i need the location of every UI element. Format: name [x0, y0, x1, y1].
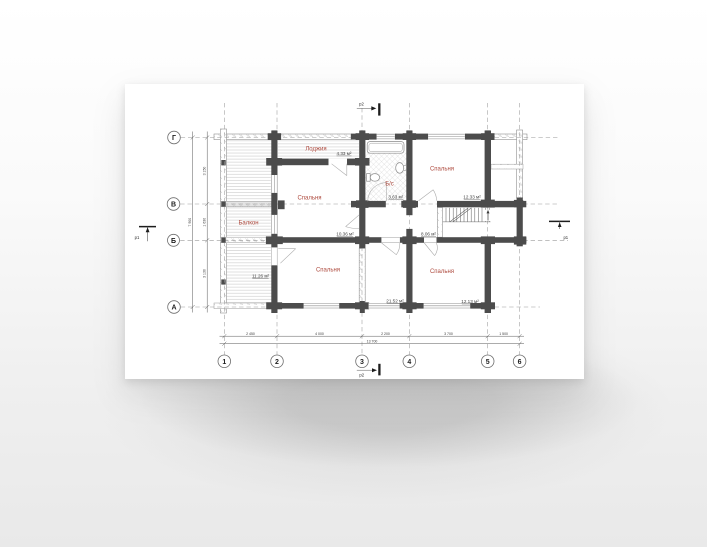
svg-text:Б/с: Б/с: [385, 182, 394, 188]
svg-text:12.33 м²: 12.33 м²: [463, 195, 481, 200]
svg-text:4 000: 4 000: [315, 332, 324, 336]
svg-text:Г: Г: [172, 135, 176, 142]
svg-text:1 630: 1 630: [203, 218, 207, 227]
svg-text:р2: р2: [359, 101, 364, 106]
svg-text:12.13 м²: 12.13 м²: [461, 299, 479, 304]
svg-text:Спальня: Спальня: [297, 196, 321, 202]
svg-text:Спальня: Спальня: [316, 268, 340, 274]
svg-text:6: 6: [518, 359, 522, 366]
svg-text:2: 2: [275, 359, 279, 366]
svg-text:2 450: 2 450: [246, 332, 255, 336]
svg-text:11.26 м²: 11.26 м²: [252, 274, 270, 279]
svg-text:Спальня: Спальня: [430, 269, 454, 275]
svg-text:13 700: 13 700: [367, 340, 378, 344]
svg-text:10.36 м²: 10.36 м²: [336, 232, 354, 237]
svg-text:4: 4: [407, 359, 411, 366]
svg-text:Лоджия: Лоджия: [305, 147, 326, 153]
svg-text:1: 1: [222, 359, 226, 366]
svg-text:р1: р1: [563, 235, 568, 240]
svg-text:21.52 м²: 21.52 м²: [386, 299, 404, 304]
svg-text:8.06 м²: 8.06 м²: [421, 232, 436, 237]
svg-text:7 900: 7 900: [188, 218, 192, 227]
svg-text:2 200: 2 200: [381, 332, 390, 336]
svg-text:А: А: [171, 305, 176, 312]
svg-text:3.63 м²: 3.63 м²: [388, 195, 403, 200]
svg-text:3: 3: [360, 359, 364, 366]
svg-text:Спальня: Спальня: [430, 167, 454, 173]
svg-text:4.33 м²: 4.33 м²: [337, 151, 352, 156]
svg-text:В: В: [171, 202, 176, 209]
svg-text:р1: р1: [135, 235, 140, 240]
svg-text:3 130: 3 130: [203, 269, 207, 278]
svg-text:1 500: 1 500: [499, 332, 508, 336]
svg-text:Б: Б: [171, 238, 176, 245]
svg-text:3 150: 3 150: [203, 167, 207, 176]
svg-text:3 700: 3 700: [444, 332, 453, 336]
svg-text:Балкон: Балкон: [238, 221, 258, 227]
svg-text:р2: р2: [359, 373, 364, 378]
svg-text:5: 5: [486, 359, 490, 366]
